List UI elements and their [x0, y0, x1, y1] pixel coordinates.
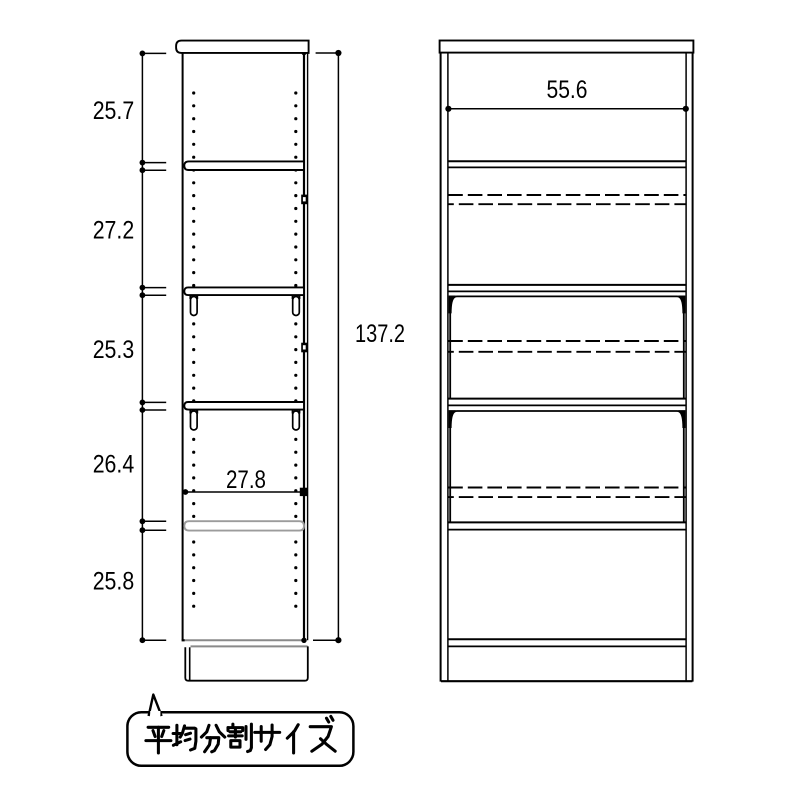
svg-text:55.6: 55.6: [547, 76, 588, 104]
svg-text:27.8: 27.8: [226, 466, 266, 494]
svg-text:137.2: 137.2: [355, 320, 405, 348]
svg-text:26.4: 26.4: [93, 451, 135, 479]
svg-text:25.3: 25.3: [93, 336, 135, 364]
svg-text:27.2: 27.2: [93, 217, 135, 245]
svg-text:25.8: 25.8: [93, 568, 135, 596]
svg-text:25.7: 25.7: [93, 97, 135, 125]
